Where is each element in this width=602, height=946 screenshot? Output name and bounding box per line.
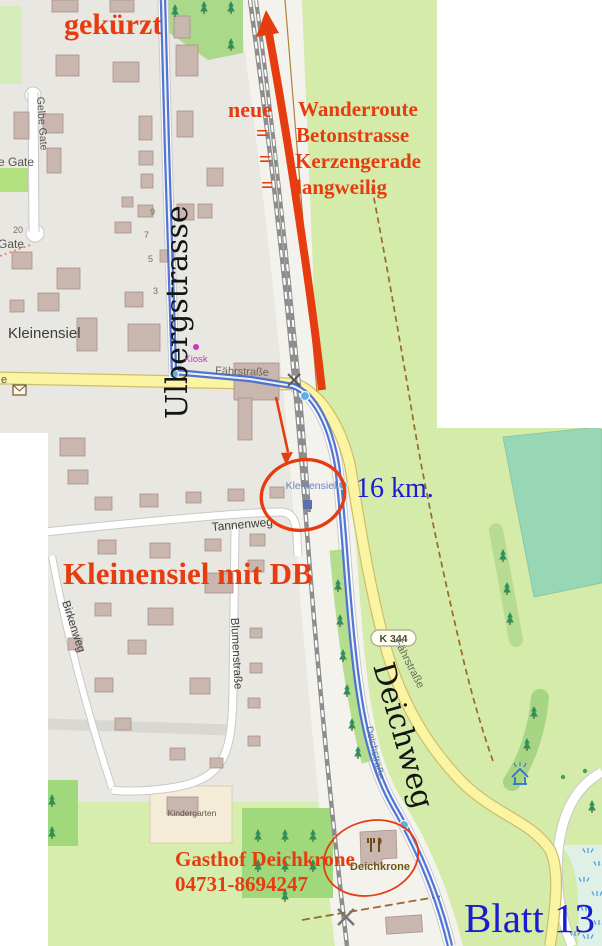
annotation-wanderroute: Wanderroute xyxy=(298,97,418,121)
house-number-7: 7 xyxy=(144,230,149,240)
street-label-ulbergstrasse: Ulbergstrasse xyxy=(160,205,195,419)
annotation-equals-1: = xyxy=(256,120,269,145)
green-patch xyxy=(0,168,28,192)
house-number-20: 20 xyxy=(13,225,23,235)
annotation-gasthof-name: Gasthof Deichkrone xyxy=(175,847,355,871)
route-node xyxy=(301,392,310,401)
house-number-5: 5 xyxy=(148,254,153,264)
annotation-distance: 16 km. xyxy=(356,473,434,504)
street-label-gate: Gate xyxy=(0,237,24,251)
map-screenshot: K 344 Ulbergstrasse Deichweg Gelbe Gate … xyxy=(0,0,602,946)
annotation-neue: neue xyxy=(228,97,272,122)
osm-map: K 344 Ulbergstrasse Deichweg Gelbe Gate … xyxy=(0,0,602,946)
annotation-sheet: Blatt 13 xyxy=(464,895,595,941)
station-icon xyxy=(303,500,312,509)
house-number-3: 3 xyxy=(153,286,158,296)
place-label-kleinensiel: Kleinensiel xyxy=(8,325,81,342)
restaurant-label: Deichkrone xyxy=(350,861,410,873)
street-label-faehrstrasse-1: Fährstraße xyxy=(215,365,269,379)
house-number-9: 9 xyxy=(150,207,155,217)
street-label-cut-e: e xyxy=(1,374,7,386)
green-patch xyxy=(0,6,22,84)
annotation-equals-2: = xyxy=(259,146,272,171)
kiosk-label: Kiosk xyxy=(184,354,207,365)
annotation-gekuerzt: gekürzt xyxy=(64,8,162,41)
annotation-kerzengerade: Kerzengerade xyxy=(295,149,421,173)
postbox-icon xyxy=(13,385,26,395)
kindergarten-label: Kindergarten xyxy=(168,808,217,818)
street-label-gelbe-gate-cut: e Gate xyxy=(0,155,34,169)
annotation-equals-3: = xyxy=(261,172,274,197)
track-road xyxy=(48,724,230,730)
annotation-betonstrasse: Betonstrasse xyxy=(296,123,409,147)
annotation-gasthof-phone: 04731-8694247 xyxy=(175,872,308,896)
annotation-langweilig: langweilig xyxy=(296,175,388,199)
annotation-title: Kleinensiel mit DB xyxy=(63,556,313,591)
station-label: Kleinensiel xyxy=(286,480,337,492)
